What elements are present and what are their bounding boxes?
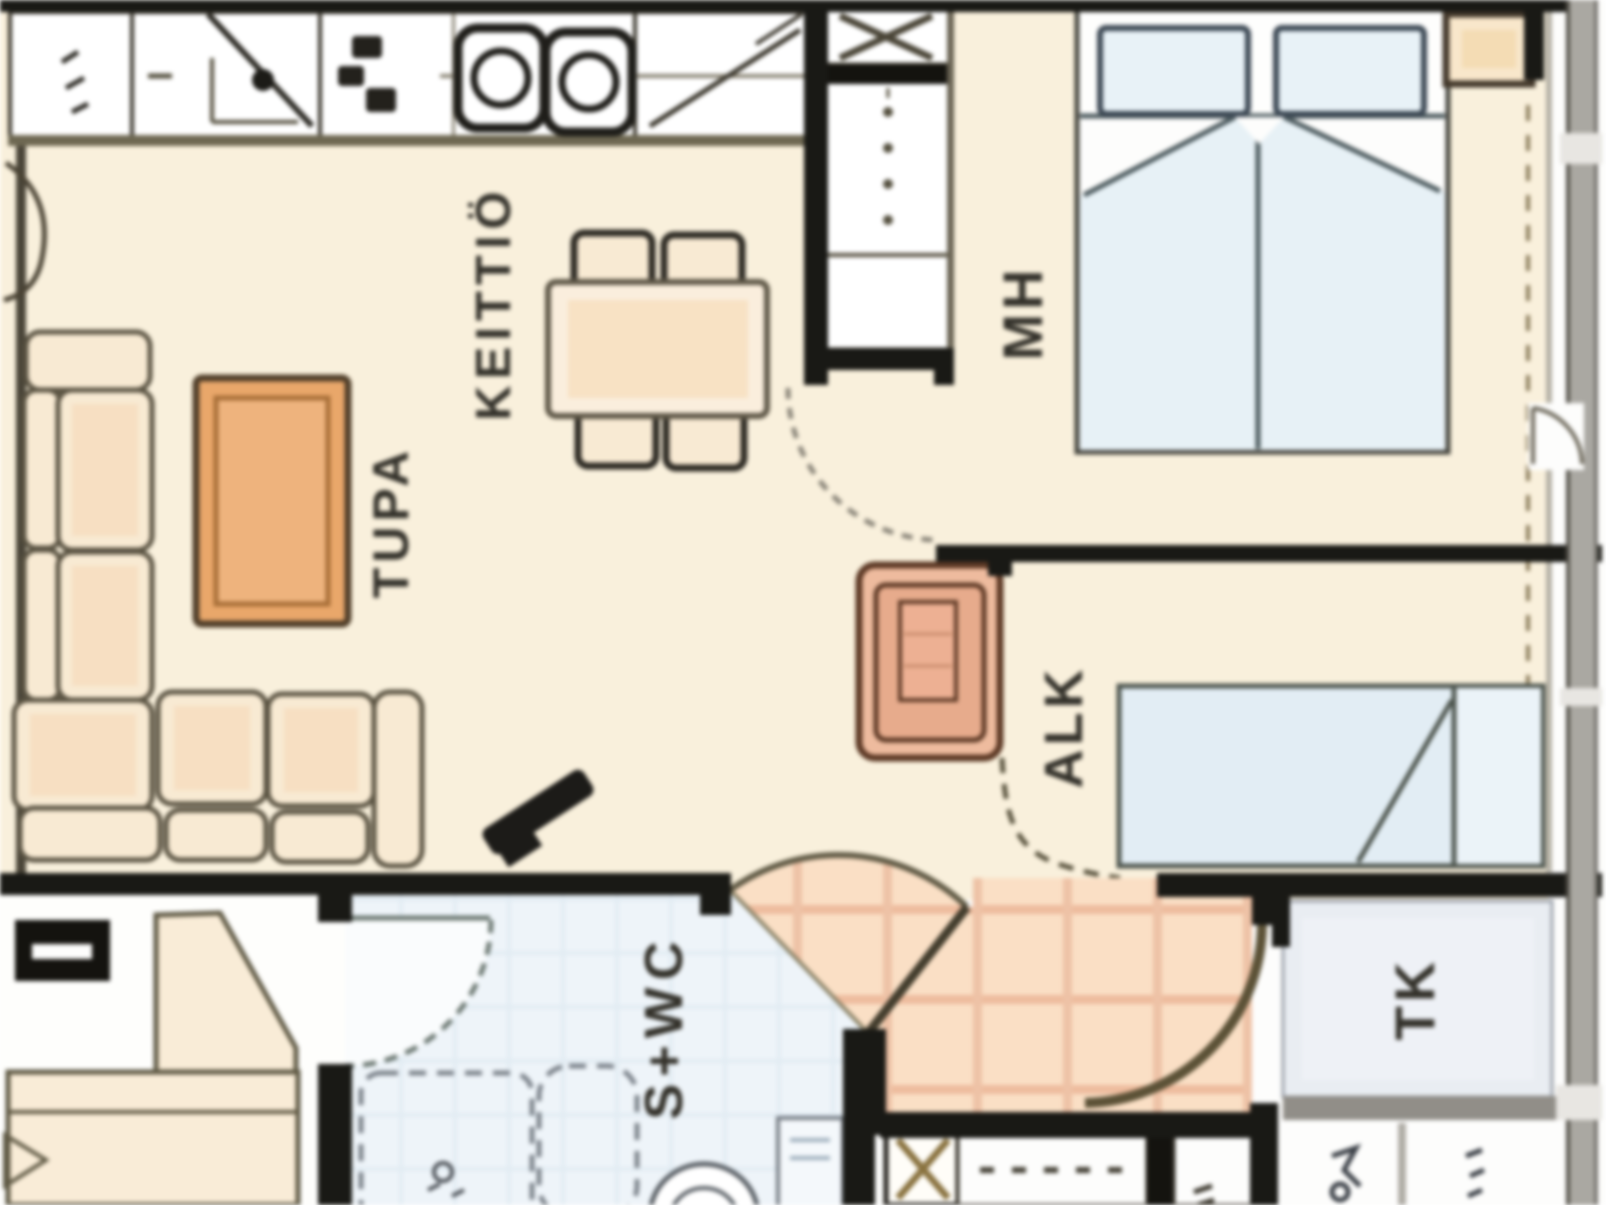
- svg-text:S+WC: S+WC: [634, 934, 694, 1120]
- svg-text:TK: TK: [1383, 958, 1446, 1041]
- svg-text:TUPA: TUPA: [363, 446, 419, 598]
- svg-text:MH: MH: [991, 265, 1054, 360]
- svg-text:ALK: ALK: [1034, 666, 1094, 789]
- svg-text:KEITTIÖ: KEITTIÖ: [467, 185, 521, 420]
